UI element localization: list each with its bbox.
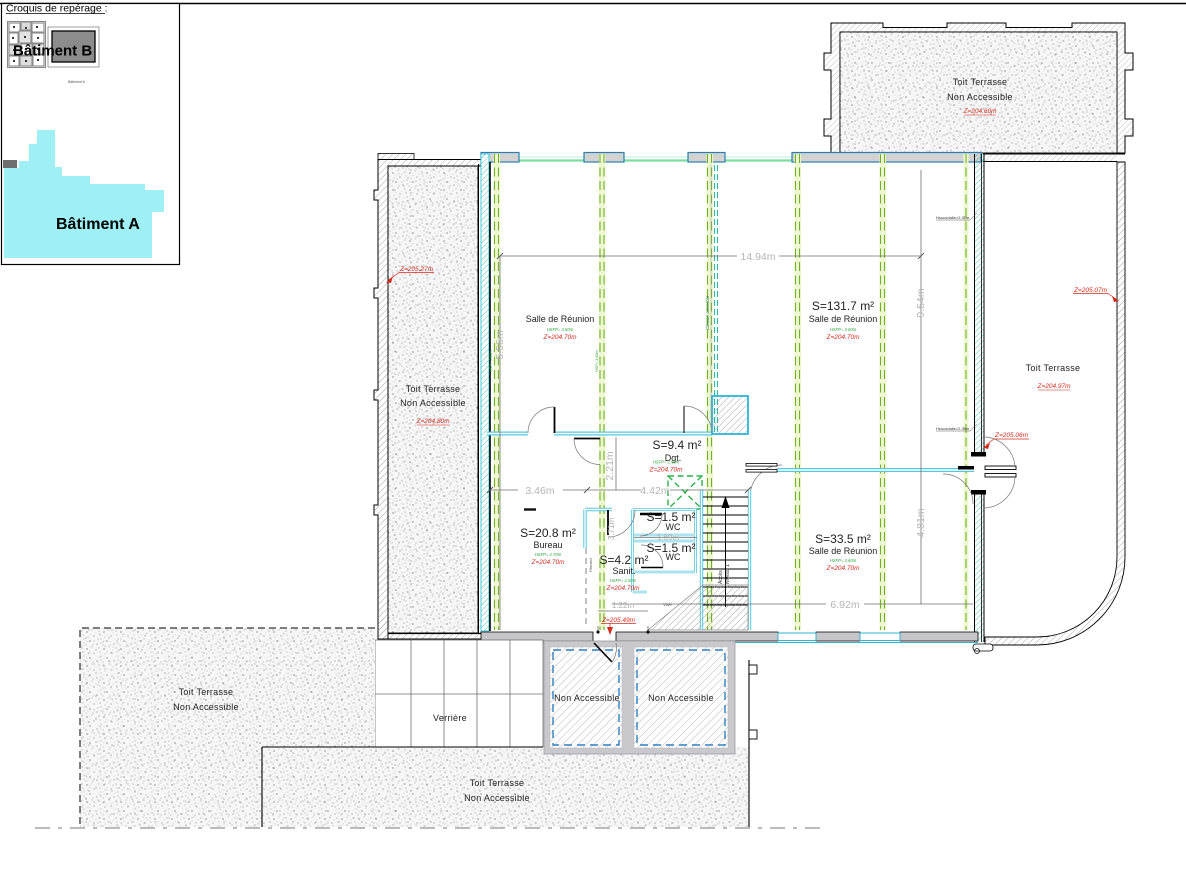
svg-text:WC: WC bbox=[666, 522, 681, 532]
svg-text:Placard: Placard bbox=[588, 558, 593, 572]
svg-text:HSFP= 3.60m: HSFP= 3.60m bbox=[547, 327, 574, 332]
svg-text:1.69m: 1.69m bbox=[657, 533, 680, 542]
svg-text:HSFP= 2.50m: HSFP= 2.50m bbox=[653, 460, 680, 465]
svg-text:HSP= 3.60m: HSP= 3.60m bbox=[595, 350, 599, 372]
svg-text:Z=204.70m: Z=204.70m bbox=[648, 467, 683, 474]
svg-text:Z=204.60m: Z=204.60m bbox=[962, 108, 997, 115]
svg-text:HSP= 3.60m: HSP= 3.60m bbox=[489, 350, 493, 372]
svg-text:Toit Terrasse: Toit Terrasse bbox=[406, 384, 461, 394]
svg-text:3.71m: 3.71m bbox=[607, 518, 616, 541]
svg-text:Z=205.06m: Z=205.06m bbox=[994, 432, 1029, 439]
svg-text:5.56m: 5.56m bbox=[494, 330, 506, 359]
svg-text:S=33.5 m²: S=33.5 m² bbox=[815, 532, 871, 546]
svg-text:HSFP= 3.60m: HSFP= 3.60m bbox=[830, 327, 857, 332]
svg-text:Bâtiment A: Bâtiment A bbox=[68, 80, 86, 84]
svg-text:HSFP= 2.50m: HSFP= 2.50m bbox=[610, 578, 637, 583]
svg-text:Salle de Réunion: Salle de Réunion bbox=[809, 546, 878, 556]
svg-text:Z=204.70m: Z=204.70m bbox=[605, 585, 640, 592]
svg-text:14.94m: 14.94m bbox=[740, 251, 775, 263]
svg-text:Z=204.70m: Z=204.70m bbox=[825, 565, 860, 572]
svg-text:Non Accessible: Non Accessible bbox=[464, 793, 530, 803]
svg-text:Toit Terrasse: Toit Terrasse bbox=[1026, 363, 1081, 373]
svg-text:S=4.2 m²: S=4.2 m² bbox=[599, 553, 648, 567]
svg-text:Bâtiment B: Bâtiment B bbox=[13, 43, 92, 60]
svg-text:Bâtiment A: Bâtiment A bbox=[56, 216, 140, 233]
svg-text:4.42m: 4.42m bbox=[640, 485, 669, 497]
svg-text:S=131.7 m²: S=131.7 m² bbox=[812, 299, 874, 313]
svg-text:Hsousdalle=2.35m: Hsousdalle=2.35m bbox=[936, 426, 970, 431]
svg-text:1.22m: 1.22m bbox=[612, 601, 635, 610]
svg-text:S=20.8 m²: S=20.8 m² bbox=[520, 526, 576, 540]
svg-text:Non Accessible: Non Accessible bbox=[947, 92, 1013, 102]
svg-text:Non Accessible: Non Accessible bbox=[173, 702, 239, 712]
svg-text:3.46m: 3.46m bbox=[525, 485, 554, 497]
svg-text:Niveau 1: Niveau 1 bbox=[725, 564, 731, 584]
svg-text:Salle de Réunion: Salle de Réunion bbox=[526, 314, 595, 324]
svg-text:Toit Terrasse: Toit Terrasse bbox=[179, 687, 234, 697]
svg-text:Accès: Accès bbox=[718, 570, 724, 584]
svg-text:Vide: Vide bbox=[663, 602, 672, 607]
svg-text:Salle de Réunion: Salle de Réunion bbox=[809, 314, 878, 324]
svg-text:Z=205.27m: Z=205.27m bbox=[399, 266, 434, 273]
svg-text:HSFP= 2.70m: HSFP= 2.70m bbox=[535, 552, 562, 557]
svg-text:WC: WC bbox=[666, 552, 681, 562]
svg-text:HSFP= 3.60m: HSFP= 3.60m bbox=[830, 558, 857, 563]
svg-text:2.21m: 2.21m bbox=[604, 451, 616, 480]
svg-text:Non Accessible: Non Accessible bbox=[648, 693, 714, 703]
svg-text:Sanit.: Sanit. bbox=[612, 566, 635, 576]
svg-text:Z=204.70m: Z=204.70m bbox=[542, 334, 577, 341]
svg-text:Croquis de repérage :: Croquis de repérage : bbox=[6, 3, 108, 15]
svg-text:Cloison amovible: Cloison amovible bbox=[705, 295, 710, 330]
svg-text:Toit Terrasse: Toit Terrasse bbox=[470, 778, 525, 788]
svg-text:6.92m: 6.92m bbox=[830, 599, 859, 611]
svg-text:Non Accessible: Non Accessible bbox=[554, 693, 620, 703]
svg-text:Hsousdalle=2.35m: Hsousdalle=2.35m bbox=[936, 215, 970, 220]
svg-text:Bureau: Bureau bbox=[533, 540, 562, 550]
svg-text:S=9.4 m²: S=9.4 m² bbox=[652, 438, 701, 452]
svg-text:Toit Terrasse: Toit Terrasse bbox=[953, 77, 1008, 87]
svg-text:Z=204.70m: Z=204.70m bbox=[530, 559, 565, 566]
svg-text:Verrière: Verrière bbox=[433, 713, 467, 723]
svg-text:9.54m: 9.54m bbox=[915, 288, 927, 317]
svg-text:Z=204.80m: Z=204.80m bbox=[415, 418, 450, 425]
svg-text:Z=204.70m: Z=204.70m bbox=[825, 334, 860, 341]
svg-text:Z=205.07m: Z=205.07m bbox=[1073, 287, 1108, 294]
svg-text:Z=204.97m: Z=204.97m bbox=[1036, 383, 1071, 390]
svg-text:Non Accessible: Non Accessible bbox=[400, 398, 466, 408]
svg-text:Z=205.49m: Z=205.49m bbox=[601, 617, 636, 624]
svg-text:4.81m: 4.81m bbox=[915, 508, 927, 537]
